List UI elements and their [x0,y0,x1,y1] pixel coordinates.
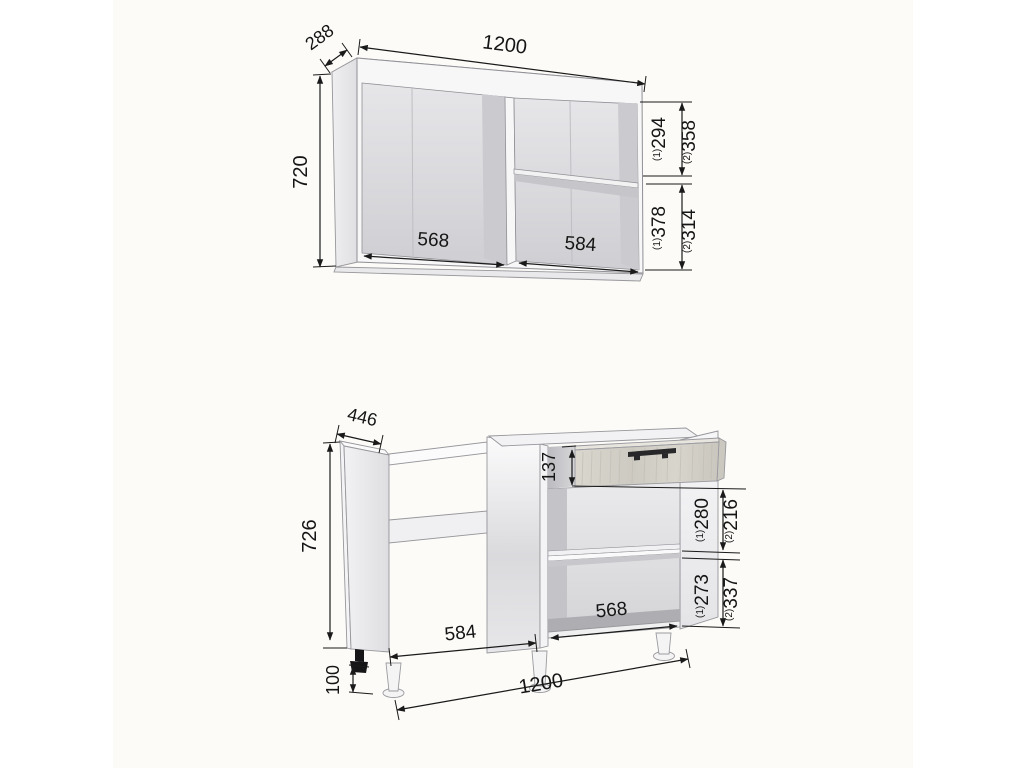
furniture-dimension-drawing: 288 1200 720 568 584 (1)294 (2)358 (1)37… [0,0,1024,768]
lower-drawer-height-label: 137 [539,452,559,482]
upper-height-label: 720 [290,155,312,188]
lower-right-opening-width-label: 568 [595,599,629,623]
drawer-front [575,442,719,487]
lower-middle-panel [487,437,540,653]
leg [656,633,671,654]
upper-cabinet-side-panel [332,58,358,267]
drawing-canvas: 288 1200 720 568 584 (1)294 (2)358 (1)37… [0,0,1024,768]
lower-left-panel-face [344,446,389,652]
lower-left-opening-width-label: 584 [444,621,478,645]
lower-height-label: 726 [299,519,321,552]
lower-drawer [575,438,726,487]
lower-leg-height-label: 100 [323,665,343,695]
upper-left-opening-width-label: 568 [417,229,450,252]
upper-left-opening-sidewall [482,94,507,265]
leg [386,663,401,691]
upper-right-opening-width-label: 584 [564,233,598,256]
upper-cabinet [332,58,643,281]
